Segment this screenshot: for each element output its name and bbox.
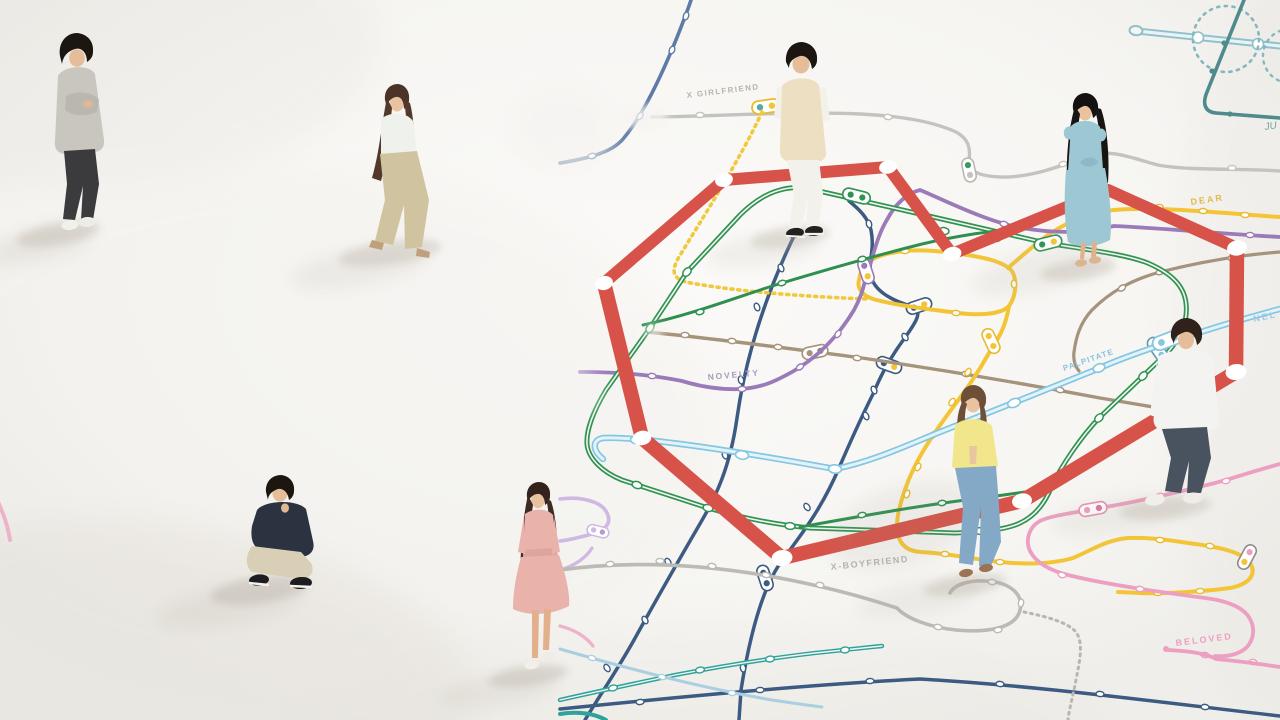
svg-text:JU: JU bbox=[1263, 120, 1278, 133]
